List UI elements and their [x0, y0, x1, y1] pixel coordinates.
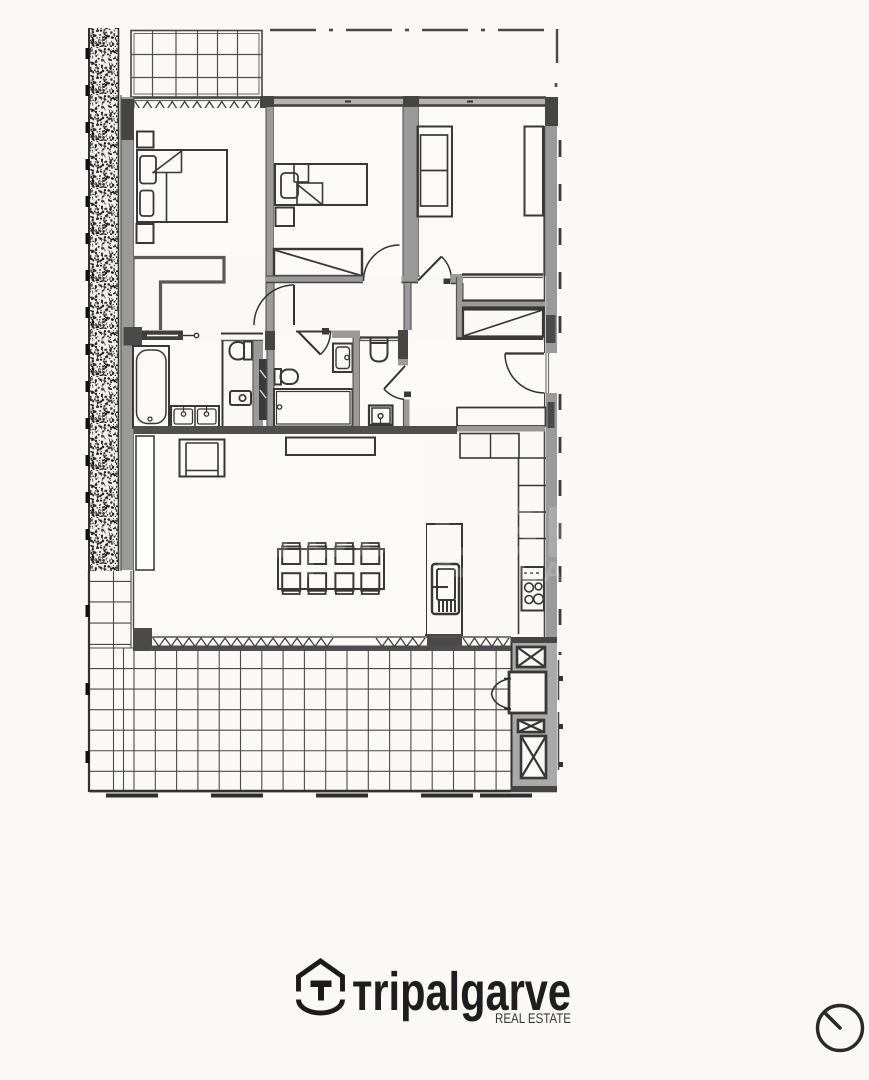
svg-text:REAL ESTATE: REAL ESTATE — [493, 556, 743, 587]
svg-text:REAL ESTATE: REAL ESTATE — [495, 1010, 571, 1026]
